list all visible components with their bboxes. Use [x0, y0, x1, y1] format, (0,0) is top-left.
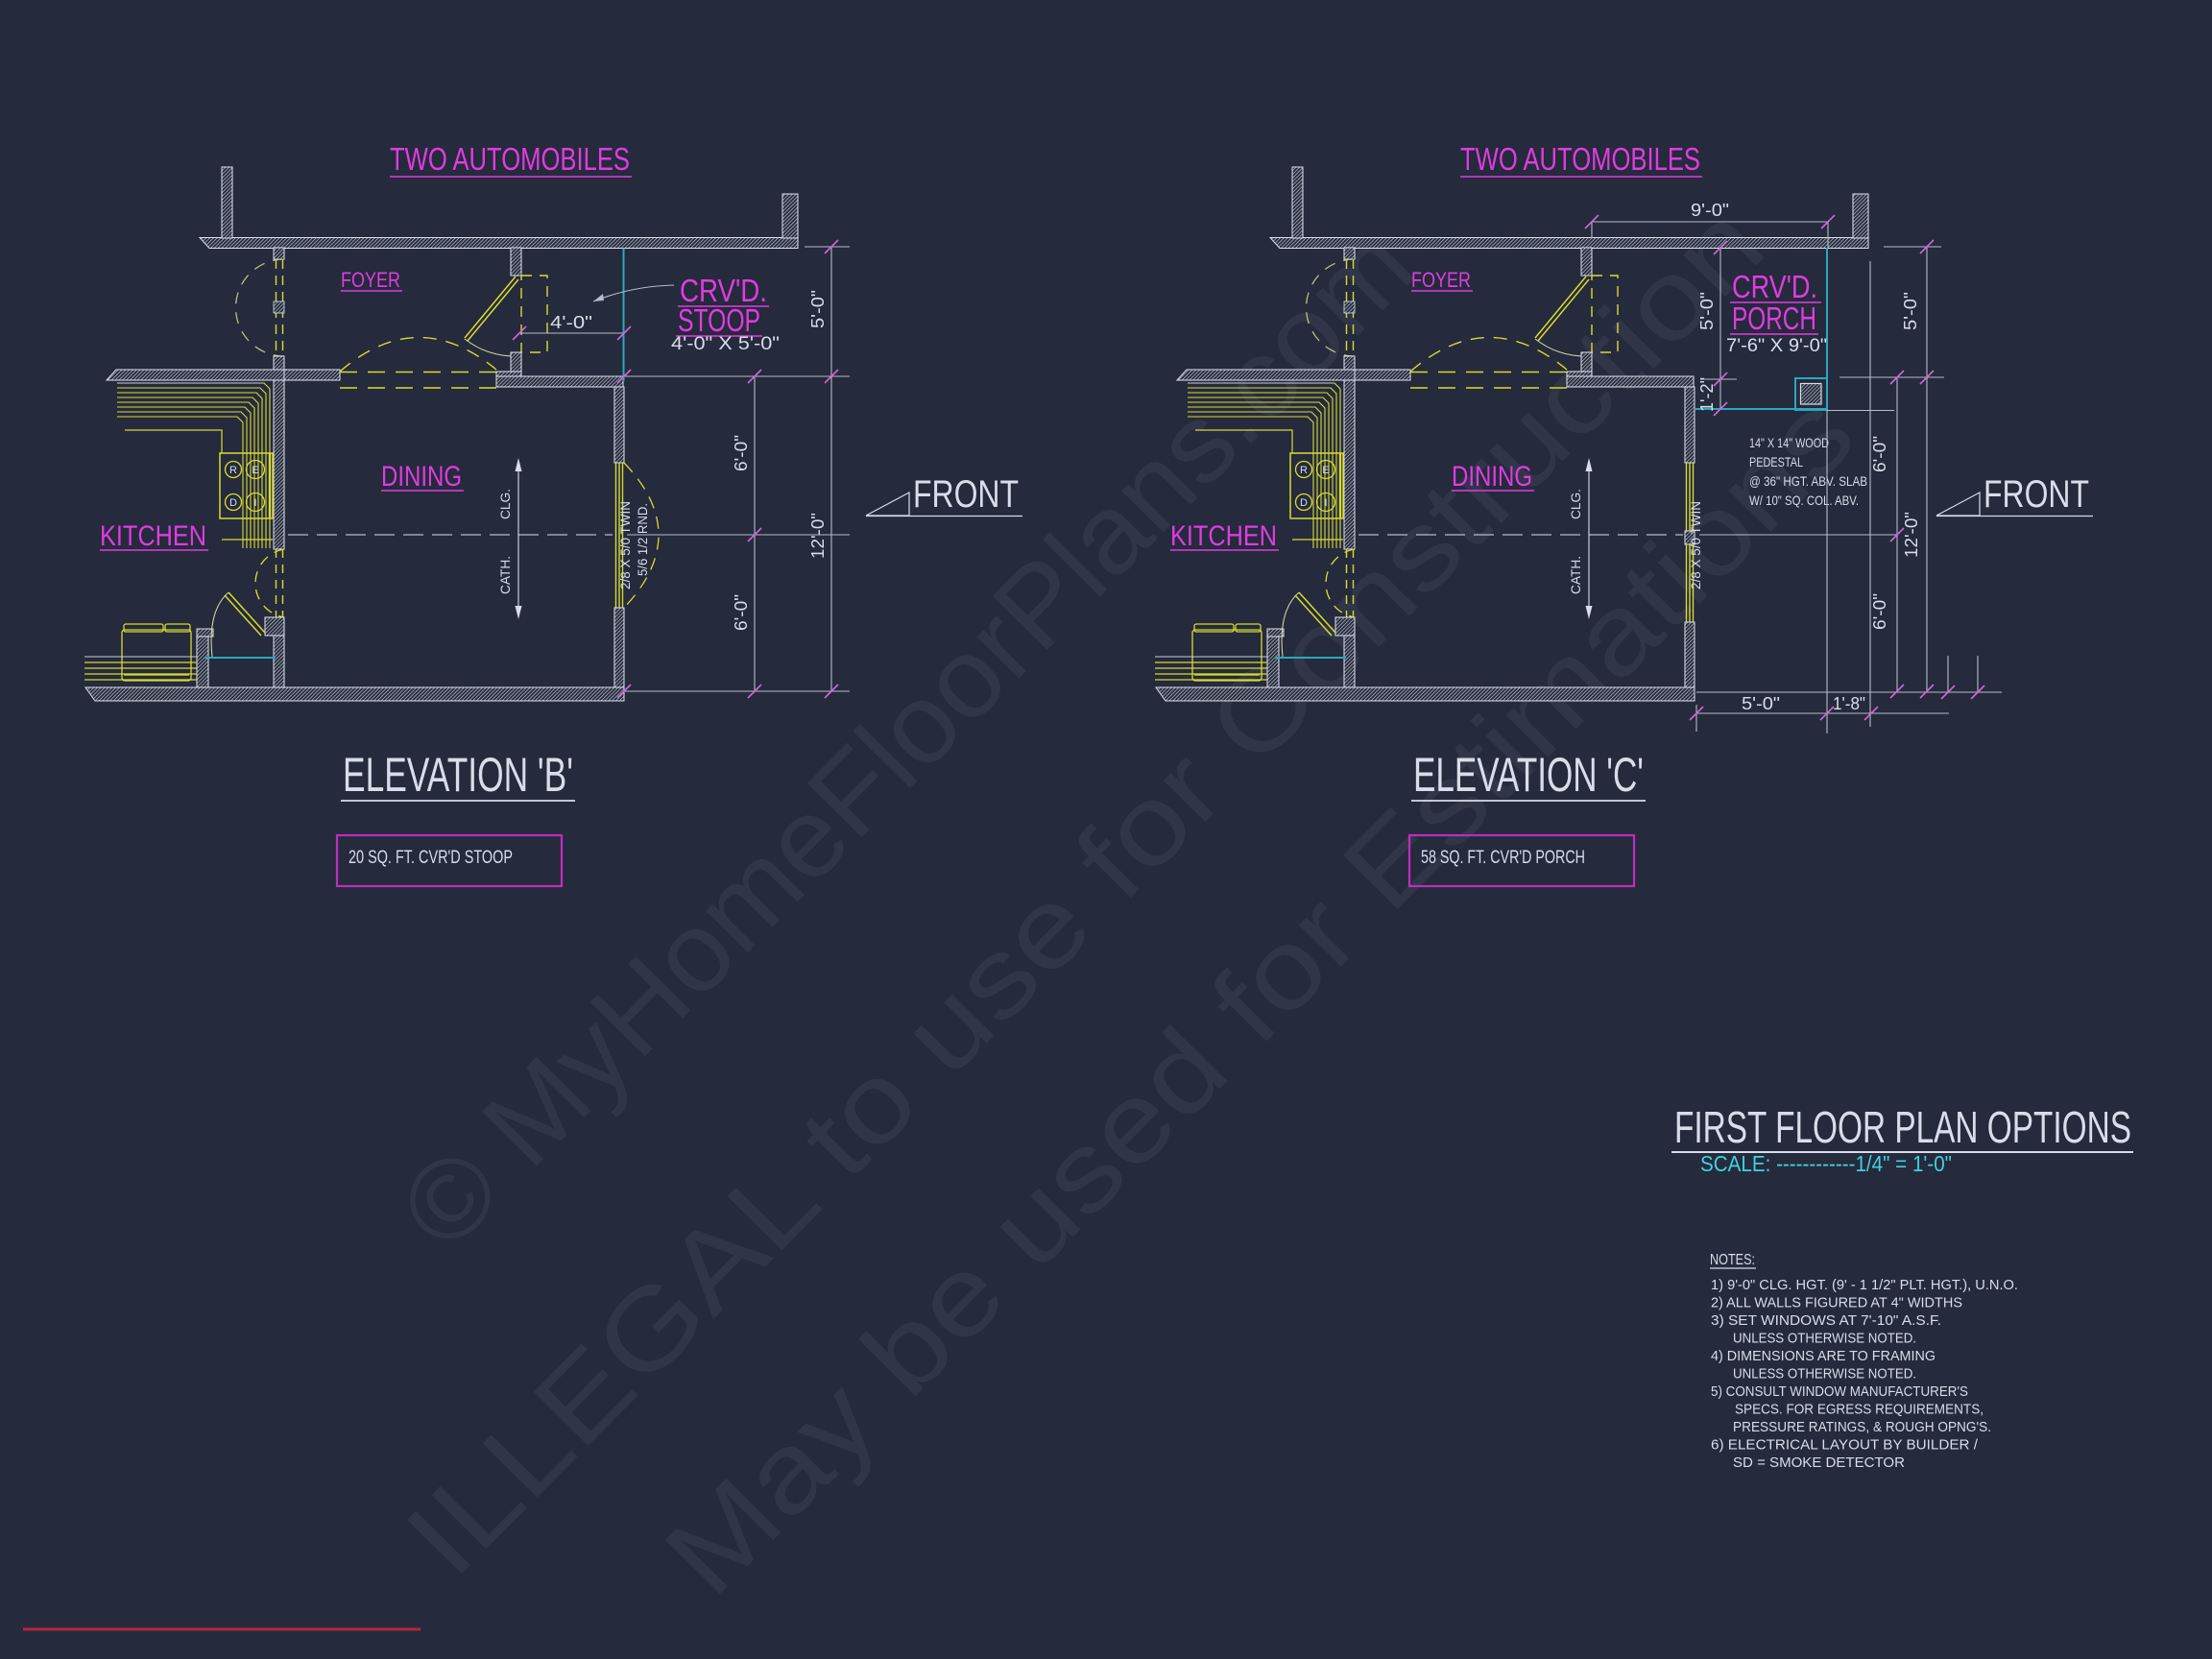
svg-text:3) SET WINDOWS AT 7'-10" A.S.: 3) SET WINDOWS AT 7'-10" A.S.F.: [1711, 1312, 1941, 1329]
svg-text:1'-2": 1'-2": [1697, 377, 1717, 412]
svg-text:5/6 1/2 RND.: 5/6 1/2 RND.: [635, 503, 650, 576]
svg-text:PRESSURE RATINGS, & ROUGH OPNG: PRESSURE RATINGS, & ROUGH OPNG'S.: [1733, 1419, 1991, 1435]
svg-text:5'-0": 5'-0": [1742, 694, 1780, 713]
svg-text:6'-0": 6'-0": [732, 594, 751, 631]
svg-text:FIRST FLOOR PLAN OPTIONS: FIRST FLOOR PLAN OPTIONS: [1674, 1102, 2131, 1152]
svg-text:12'-0": 12'-0": [808, 513, 828, 559]
svg-text:UNLESS OTHERWISE NOTED.: UNLESS OTHERWISE NOTED.: [1733, 1331, 1916, 1347]
svg-text:CLG.: CLG.: [497, 489, 513, 519]
svg-text:DINING: DINING: [381, 461, 462, 493]
svg-text:5) CONSULT WINDOW MANUFACTURE: 5) CONSULT WINDOW MANUFACTURER'S: [1711, 1383, 1968, 1400]
svg-text:CATH.: CATH.: [497, 556, 513, 594]
svg-text:9'-0": 9'-0": [1691, 201, 1729, 220]
svg-text:6'-0": 6'-0": [1870, 593, 1889, 630]
svg-text:E: E: [1322, 465, 1329, 476]
svg-text:TWO AUTOMOBILES: TWO AUTOMOBILES: [1460, 141, 1700, 177]
svg-text:4'-0" X 5'-0": 4'-0" X 5'-0": [671, 334, 780, 354]
svg-text:D: D: [229, 497, 237, 509]
svg-text:6'-0": 6'-0": [1870, 436, 1889, 472]
svg-text:58 SQ. FT. CVR'D PORCH: 58 SQ. FT. CVR'D PORCH: [1421, 848, 1585, 868]
svg-text:FRONT: FRONT: [1984, 473, 2089, 516]
svg-text:1'-8": 1'-8": [1833, 694, 1865, 713]
svg-text:CATH.: CATH.: [1568, 556, 1583, 594]
svg-text:4'-0": 4'-0": [550, 313, 592, 332]
svg-text:7'-6" X 9'-0": 7'-6" X 9'-0": [1726, 336, 1827, 356]
svg-text:SCALE: ------------1/4" = 1'-0: SCALE: ------------1/4" = 1'-0": [1700, 1151, 1952, 1176]
svg-text:R: R: [229, 465, 237, 476]
svg-text:KITCHEN: KITCHEN: [100, 520, 206, 552]
svg-text:STOOP: STOOP: [678, 302, 760, 338]
svg-text:4) DIMENSIONS ARE TO FRAMING: 4) DIMENSIONS ARE TO FRAMING: [1711, 1348, 1935, 1364]
svg-text:PEDESTAL: PEDESTAL: [1749, 454, 1803, 469]
svg-text:20 SQ. FT. CVR'D STOOP: 20 SQ. FT. CVR'D STOOP: [349, 848, 513, 868]
svg-text:DINING: DINING: [1452, 461, 1532, 493]
svg-text:6'-0": 6'-0": [732, 435, 751, 471]
svg-text:5'-0": 5'-0": [1901, 292, 1920, 330]
svg-text:TWO AUTOMOBILES: TWO AUTOMOBILES: [390, 141, 630, 177]
svg-text:ELEVATION 'B': ELEVATION 'B': [343, 748, 573, 802]
svg-text:2) ALL WALLS FIGURED AT 4" W: 2) ALL WALLS FIGURED AT 4" WIDTHS: [1711, 1295, 1962, 1311]
svg-text:5'-0": 5'-0": [808, 290, 828, 328]
svg-text:NOTES:: NOTES:: [1710, 1252, 1755, 1268]
svg-text:@ 36" HGT. ABV. SLAB: @ 36" HGT. ABV. SLAB: [1749, 473, 1867, 489]
svg-text:PORCH: PORCH: [1732, 301, 1816, 336]
svg-text:6) ELECTRICAL LAYOUT BY BUILD: 6) ELECTRICAL LAYOUT BY BUILDER /: [1711, 1437, 1979, 1454]
svg-text:R: R: [1300, 465, 1308, 476]
svg-text:KITCHEN: KITCHEN: [1170, 520, 1277, 552]
svg-text:2/8 X 5/0 TWIN: 2/8 X 5/0 TWIN: [1688, 501, 1703, 589]
svg-text:SPECS. FOR EGRESS REQUIREMENTS: SPECS. FOR EGRESS REQUIREMENTS,: [1735, 1402, 1984, 1418]
svg-text:FRONT: FRONT: [913, 473, 1019, 516]
svg-text:CLG.: CLG.: [1568, 489, 1583, 519]
svg-text:UNLESS OTHERWISE NOTED.: UNLESS OTHERWISE NOTED.: [1733, 1366, 1916, 1382]
svg-text:SD = SMOKE DETECTOR: SD = SMOKE DETECTOR: [1733, 1455, 1905, 1471]
svg-text:W/ 10" SQ. COL. ABV.: W/ 10" SQ. COL. ABV.: [1749, 493, 1859, 508]
svg-text:I: I: [253, 497, 256, 509]
svg-text:12'-0": 12'-0": [1902, 512, 1921, 558]
svg-text:FOYER: FOYER: [1411, 268, 1471, 292]
svg-text:1) 9'-0" CLG. HGT. (9' - 1 1: 1) 9'-0" CLG. HGT. (9' - 1 1/2" PLT. HGT…: [1711, 1277, 2018, 1293]
svg-text:14" X 14" WOOD: 14" X 14" WOOD: [1749, 435, 1829, 450]
svg-text:5'-0": 5'-0": [1697, 292, 1717, 330]
svg-text:2/8 X 5/0 TWIN: 2/8 X 5/0 TWIN: [617, 501, 633, 589]
svg-text:I: I: [1324, 497, 1327, 509]
svg-text:CRV'D.: CRV'D.: [1732, 269, 1817, 304]
svg-text:FOYER: FOYER: [341, 268, 400, 292]
svg-text:E: E: [252, 465, 258, 476]
svg-text:D: D: [1300, 497, 1308, 509]
svg-text:ELEVATION 'C': ELEVATION 'C': [1413, 748, 1644, 802]
